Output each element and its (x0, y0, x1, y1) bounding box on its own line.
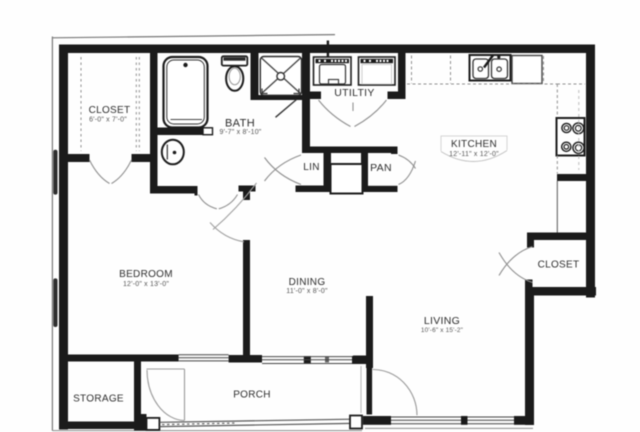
svg-text:CLOSET: CLOSET (89, 105, 131, 116)
svg-text:12'-0" x 13'-0": 12'-0" x 13'-0" (123, 281, 169, 288)
svg-text:UTILTIY: UTILTIY (334, 87, 374, 99)
svg-text:PAN: PAN (370, 162, 392, 174)
svg-text:LIN: LIN (303, 162, 319, 173)
svg-text:12'-11" x 12'-0": 12'-11" x 12'-0" (449, 151, 499, 158)
svg-text:PORCH: PORCH (233, 390, 271, 401)
svg-text:DINING: DINING (289, 277, 326, 288)
svg-text:9'-7" x 8'-10": 9'-7" x 8'-10" (220, 129, 262, 136)
svg-text:BEDROOM: BEDROOM (119, 269, 173, 280)
svg-text:STORAGE: STORAGE (73, 394, 124, 405)
svg-text:10'-6" x 15'-2": 10'-6" x 15'-2" (421, 327, 463, 334)
svg-text:KITCHEN: KITCHEN (451, 139, 497, 150)
svg-text:CLOSET: CLOSET (538, 259, 580, 270)
svg-text:11'-0" x 8'-0": 11'-0" x 8'-0" (286, 288, 328, 295)
svg-text:6'-0" x 7'-0": 6'-0" x 7'-0" (89, 117, 127, 124)
svg-text:BATH: BATH (225, 117, 255, 129)
svg-text:LIVING: LIVING (424, 315, 460, 327)
